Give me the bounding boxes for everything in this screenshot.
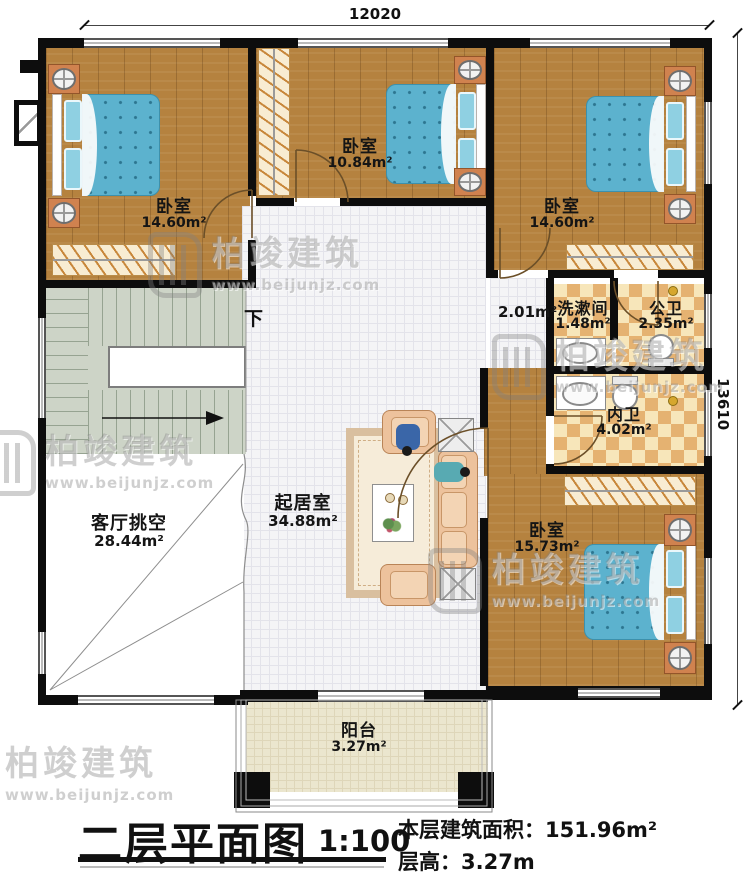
end-table [440, 568, 476, 600]
wall-partition [256, 198, 294, 206]
floor-area-line: 本层建筑面积：151.96m² [398, 814, 657, 844]
wall-partition [546, 466, 712, 474]
floor-area-value: 151.96m² [545, 818, 657, 842]
room-label-washroom: 洗漱间 1.48m² [550, 300, 616, 332]
nightstand [664, 66, 696, 96]
shower-drain [668, 286, 678, 296]
window [704, 558, 712, 644]
wall-left-stub [20, 60, 38, 73]
room-area: 10.84m² [300, 156, 420, 171]
window [530, 38, 670, 48]
room-label-void: 客厅挑空 28.44m² [64, 514, 194, 550]
wall-partition [38, 280, 256, 288]
stairs-upper-flight [88, 288, 246, 346]
room-name: 起居室 [248, 494, 358, 513]
dimension-top-value: 12020 [330, 5, 420, 23]
nightstand [664, 514, 696, 546]
toilet [648, 334, 674, 360]
bay-window-glass [19, 105, 37, 141]
person-figure-head [460, 467, 470, 477]
nightstand [664, 642, 696, 674]
window [704, 102, 712, 184]
stairs-lower-flight [88, 390, 246, 454]
shower-drain [668, 396, 678, 406]
room-name: 公卫 [630, 300, 702, 317]
room-name: 卧室 [114, 198, 234, 216]
armchair [380, 564, 436, 606]
wall-partition [248, 46, 256, 196]
room-area: 3.27m² [304, 740, 414, 755]
wall-living-bottom [424, 690, 488, 702]
room-area: 1.48m² [550, 317, 616, 332]
window [578, 688, 660, 698]
watermark-logo-icon [0, 430, 36, 496]
wall-partition [486, 46, 494, 206]
nightstand [48, 198, 80, 228]
sink-basin [562, 382, 598, 406]
nightstand [454, 168, 486, 196]
room-area: 2.35m² [630, 317, 702, 332]
closet [258, 48, 290, 196]
window [704, 294, 712, 348]
floor-height-line: 层高：3.27m [398, 846, 535, 876]
floor-height-label: 层高： [398, 850, 461, 874]
wall-partition [546, 366, 712, 374]
wall-partition [340, 198, 486, 206]
floor-height-value: 3.27m [461, 850, 535, 874]
room-label-living: 起居室 34.88m² [248, 494, 358, 530]
wall-partition [480, 368, 488, 428]
room-label-bedroom-br: 卧室 15.73m² [492, 522, 602, 555]
room-name: 卧室 [492, 522, 602, 540]
closet [52, 244, 176, 276]
bed [586, 96, 696, 192]
room-label-bedroom-tm: 卧室 10.84m² [300, 138, 420, 171]
room-area: 14.60m² [114, 216, 234, 231]
corridor-floor [484, 368, 546, 476]
wall-partition [486, 270, 498, 278]
window [84, 38, 220, 48]
closet [566, 244, 694, 270]
wall-partition [480, 518, 488, 686]
room-name: 内卫 [584, 406, 664, 423]
room-area: 4.02m² [584, 423, 664, 438]
bed [52, 94, 160, 196]
room-label-bedroom-tl: 卧室 14.60m² [114, 198, 234, 231]
closet [564, 476, 696, 506]
table-plant [380, 514, 404, 536]
room-label-public-bath: 公卫 2.35m² [630, 300, 702, 332]
floor-area-label: 本层建筑面积： [398, 818, 545, 842]
wall-partition [546, 278, 554, 416]
room-label-bedroom-tr: 卧室 14.60m² [502, 198, 622, 231]
wall-partition [658, 270, 712, 278]
room-area: 34.88m² [248, 513, 358, 529]
window [38, 632, 46, 674]
plan-scale: 1:100 [318, 824, 410, 858]
window [704, 390, 712, 456]
watermark-brand: 柏竣建筑 [5, 747, 174, 781]
wall-partition [486, 206, 494, 278]
stairs-left-flight [46, 288, 88, 454]
room-label-balcony: 阳台 3.27m² [304, 722, 414, 755]
nightstand [664, 194, 696, 224]
room-area: 28.44m² [64, 533, 194, 549]
room-name: 卧室 [300, 138, 420, 156]
room-name: 客厅挑空 [64, 514, 194, 533]
bed [584, 544, 696, 640]
dimension-right-value: 13610 [714, 378, 732, 448]
watermark-site: www.beijunjz.com [5, 786, 174, 804]
floor-plan: 卧室 14.60m² 卧室 10.84m² 卧室 14.60m² 2.01m² … [0, 0, 750, 881]
room-name: 阳台 [304, 722, 414, 740]
end-table [438, 418, 474, 452]
sink-basin [562, 342, 598, 364]
nightstand [48, 64, 80, 94]
hall-floor [490, 278, 548, 368]
wall-living-bottom [240, 690, 318, 702]
window [298, 38, 448, 48]
room-name: 卧室 [502, 198, 622, 216]
title-underline-thin [80, 866, 384, 868]
room-label-ensuite-bath: 内卫 4.02m² [584, 406, 664, 438]
window [78, 695, 214, 705]
balcony-sliding-door [318, 690, 424, 702]
table-cup [385, 493, 395, 503]
room-area: 14.60m² [502, 216, 622, 231]
dimension-line-right [737, 34, 738, 706]
void-floor [46, 454, 244, 695]
stairs-landing [108, 346, 246, 388]
window [38, 318, 46, 418]
balcony-pillar [458, 772, 494, 808]
room-area: 15.73m² [492, 540, 602, 555]
hall-area-label: 2.01m² [498, 303, 557, 321]
watermark: 柏竣建筑 www.beijunjz.com [0, 742, 174, 808]
dimension-line-top [84, 25, 710, 26]
stairs-down-label: 下 [244, 304, 263, 331]
nightstand [454, 56, 486, 84]
plan-title: 二层平面图 [78, 808, 308, 872]
table-cup [398, 495, 408, 505]
balcony-pillar [234, 772, 270, 808]
person-figure-head [402, 446, 412, 456]
room-name: 洗漱间 [550, 300, 616, 317]
wall-partition [548, 270, 614, 278]
